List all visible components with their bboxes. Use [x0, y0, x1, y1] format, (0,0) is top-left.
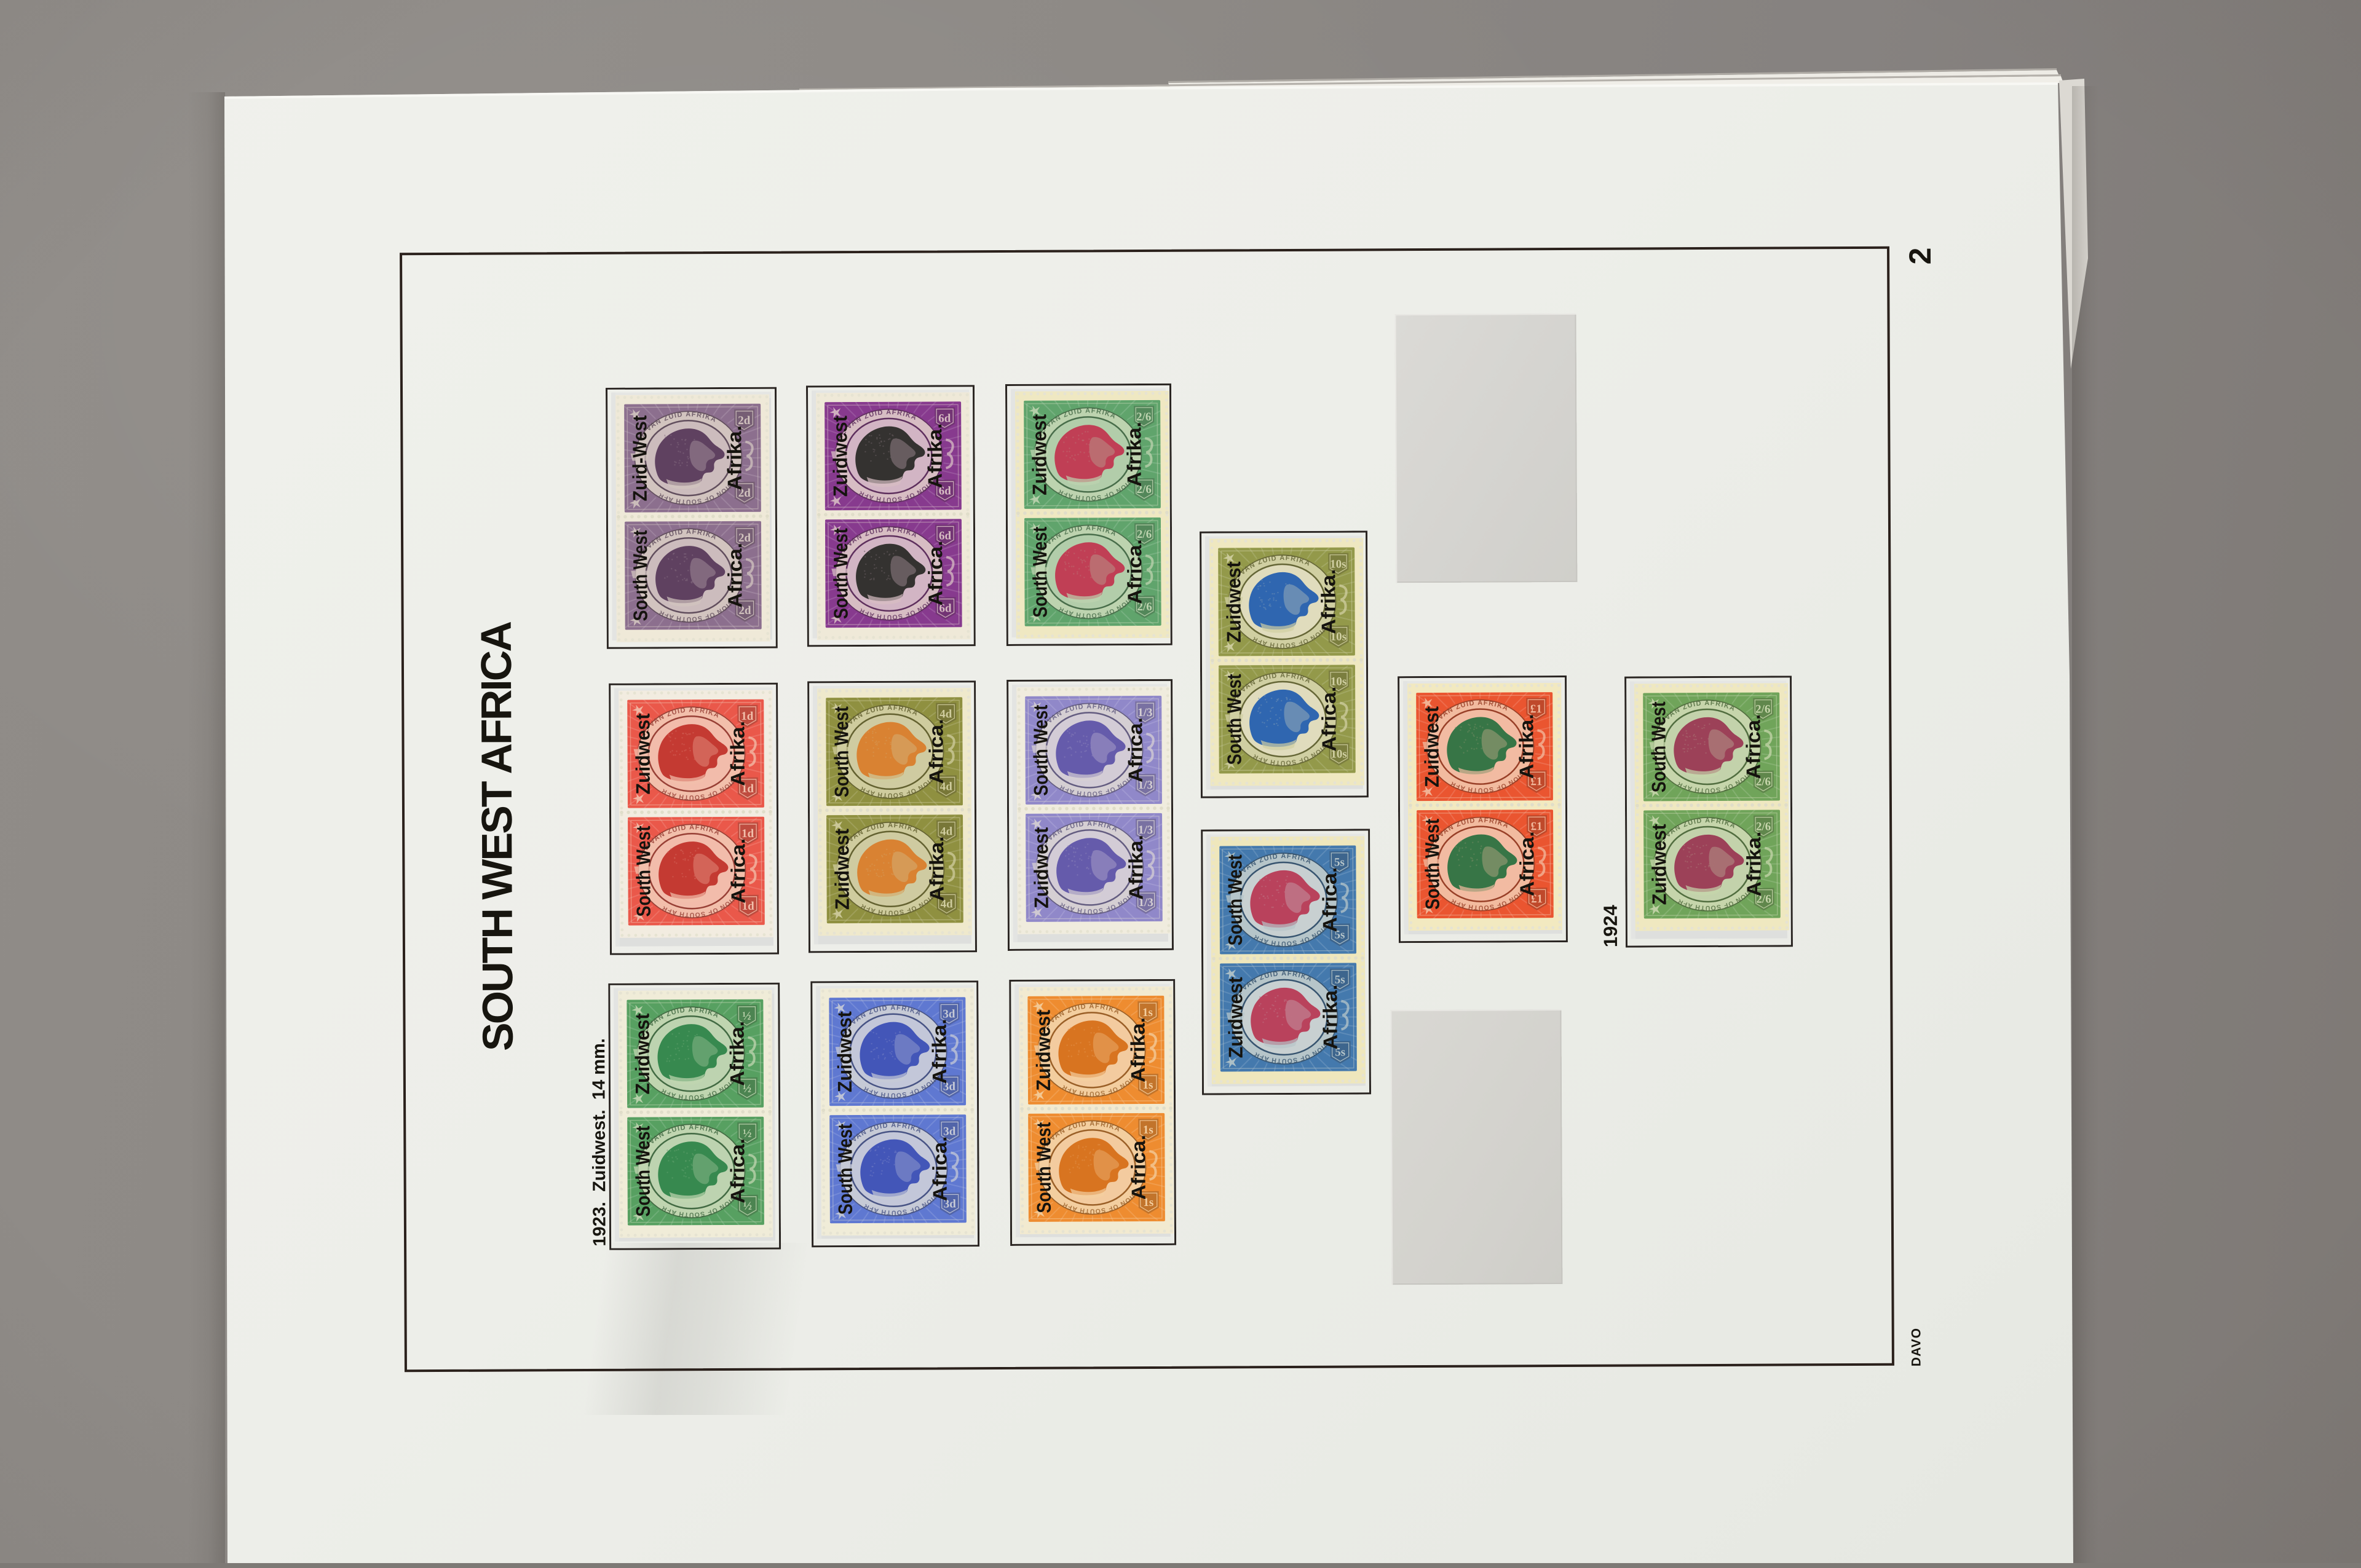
svg-text:2/6: 2/6: [1756, 821, 1771, 833]
svg-text:Zuidwest: Zuidwest: [1224, 977, 1247, 1058]
svg-text:2/6: 2/6: [1137, 528, 1152, 541]
svg-text:1s: 1s: [1143, 1124, 1153, 1137]
svg-text:Zuidwest: Zuidwest: [831, 829, 853, 910]
svg-text:3d: 3d: [943, 1007, 955, 1020]
svg-text:3d: 3d: [943, 1125, 956, 1138]
svg-text:Afrika.: Afrika.: [1515, 714, 1537, 779]
svg-text:Afrika.: Afrika.: [925, 836, 947, 901]
svg-text:5s: 5s: [1334, 856, 1345, 869]
svg-text:Africa.: Africa.: [1318, 867, 1340, 932]
svg-text:Africa.: Africa.: [727, 838, 749, 904]
svg-text:Zuidwest: Zuidwest: [1028, 414, 1051, 495]
svg-text:South West: South West: [829, 528, 852, 619]
svg-text:South West: South West: [631, 1125, 654, 1216]
svg-text:South West: South West: [1032, 1122, 1055, 1213]
svg-text:Africa.: Africa.: [1318, 687, 1340, 752]
svg-text:Afrika.: Afrika.: [923, 423, 946, 488]
svg-text:Zuidwest: Zuidwest: [1648, 824, 1671, 905]
svg-text:Zuidwest: Zuidwest: [631, 713, 654, 794]
svg-text:£1: £1: [1530, 703, 1542, 715]
svg-text:1/3: 1/3: [1138, 824, 1153, 837]
svg-text:South West: South West: [632, 825, 655, 916]
svg-text:South West: South West: [1224, 854, 1246, 945]
svg-text:4d: 4d: [940, 825, 953, 838]
svg-text:South West: South West: [834, 1124, 856, 1215]
svg-text:Afrika.: Afrika.: [1317, 569, 1339, 634]
svg-text:2d: 2d: [738, 414, 751, 427]
svg-text:Zuidwest: Zuidwest: [833, 1011, 856, 1092]
svg-text:2/6: 2/6: [1755, 703, 1770, 716]
svg-text:Afrika.: Afrika.: [1126, 1017, 1149, 1082]
svg-text:South West: South West: [1647, 701, 1670, 792]
svg-text:Africa.: Africa.: [1742, 714, 1764, 779]
svg-text:Africa.: Africa.: [1127, 1135, 1149, 1200]
svg-text:Africa.: Africa.: [924, 540, 946, 605]
svg-text:Afrika.: Afrika.: [723, 425, 745, 490]
svg-text:½: ½: [742, 1010, 751, 1023]
svg-text:Zuidwest: Zuidwest: [1030, 827, 1053, 908]
svg-text:South West: South West: [1223, 674, 1246, 765]
svg-text:£1: £1: [1531, 820, 1543, 833]
svg-text:6d: 6d: [939, 529, 952, 542]
svg-text:5s: 5s: [1335, 974, 1345, 987]
svg-text:1s: 1s: [1142, 1006, 1153, 1019]
svg-text:Africa.: Africa.: [928, 1136, 951, 1201]
svg-text:Afrika.: Afrika.: [1742, 832, 1765, 897]
svg-text:Zuidwest: Zuidwest: [829, 416, 852, 497]
svg-text:South West: South West: [1029, 704, 1052, 795]
svg-text:Afrika.: Afrika.: [726, 1021, 748, 1086]
svg-text:Afrika.: Afrika.: [928, 1018, 950, 1084]
svg-text:Africa.: Africa.: [925, 719, 947, 784]
svg-text:Zuidwest: Zuidwest: [1032, 1009, 1054, 1090]
svg-text:Afrika.: Afrika.: [726, 721, 748, 786]
svg-text:Zuidwest: Zuidwest: [1420, 706, 1443, 787]
svg-text:1/3: 1/3: [1137, 706, 1152, 719]
svg-text:Zuid-West: Zuid-West: [628, 415, 651, 501]
svg-text:Africa.: Africa.: [724, 543, 746, 608]
svg-text:1d: 1d: [741, 710, 754, 723]
svg-text:Afrika.: Afrika.: [1125, 835, 1147, 900]
svg-text:Africa.: Africa.: [726, 1138, 748, 1204]
svg-text:2/6: 2/6: [1136, 411, 1151, 424]
svg-text:Africa.: Africa.: [1123, 539, 1145, 604]
svg-text:2d: 2d: [738, 532, 751, 545]
svg-text:4d: 4d: [939, 707, 952, 720]
svg-text:South West: South West: [830, 706, 853, 797]
svg-text:Afrika.: Afrika.: [1319, 985, 1341, 1050]
svg-text:10s: 10s: [1331, 676, 1347, 688]
svg-text:South West: South West: [1029, 526, 1051, 617]
svg-text:1d: 1d: [742, 827, 754, 840]
svg-text:South West: South West: [629, 530, 652, 621]
svg-text:Zuidwest: Zuidwest: [631, 1013, 654, 1094]
svg-text:Afrika.: Afrika.: [1123, 422, 1145, 487]
svg-text:6d: 6d: [938, 412, 951, 425]
svg-text:½: ½: [743, 1127, 751, 1140]
svg-text:Africa.: Africa.: [1516, 831, 1538, 896]
svg-text:South West: South West: [1421, 819, 1444, 910]
svg-text:10s: 10s: [1330, 558, 1346, 571]
svg-text:Zuidwest: Zuidwest: [1222, 561, 1245, 642]
svg-text:Africa.: Africa.: [1124, 717, 1146, 782]
